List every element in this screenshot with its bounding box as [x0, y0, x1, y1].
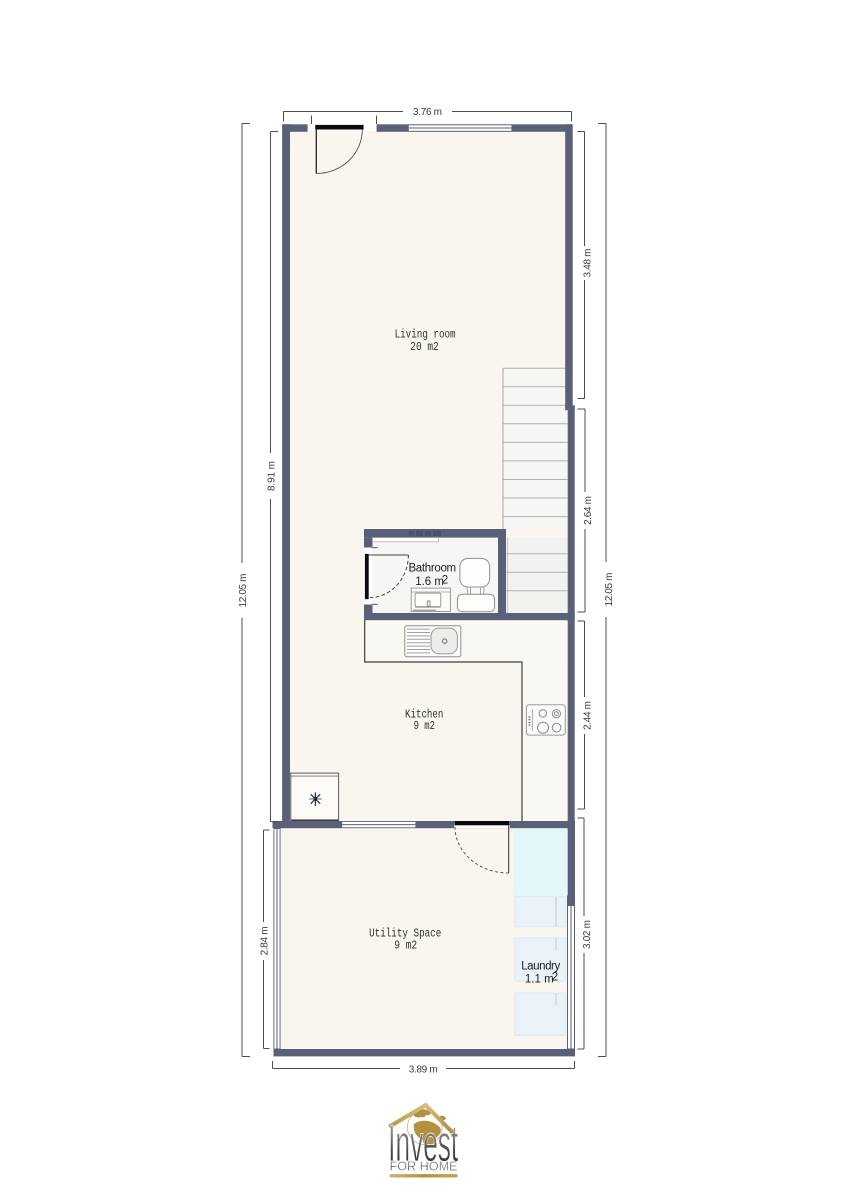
svg-text:2.84 m: 2.84 m	[260, 926, 271, 955]
svg-text:2.64 m: 2.64 m	[583, 496, 594, 525]
svg-text:9 m2: 9 m2	[414, 719, 435, 733]
svg-text:9 m2: 9 m2	[394, 939, 417, 953]
svg-text:FOR HOME: FOR HOME	[390, 1160, 458, 1174]
svg-text:12.05 m: 12.05 m	[238, 574, 249, 608]
svg-text:Bathroom: Bathroom	[408, 563, 456, 575]
svg-text:12.05 m: 12.05 m	[604, 573, 615, 607]
svg-text:3.89 m: 3.89 m	[409, 1064, 438, 1075]
svg-text:3.48 m: 3.48 m	[582, 249, 593, 278]
svg-text:20 m2: 20 m2	[410, 340, 439, 354]
svg-text:2: 2	[552, 971, 558, 983]
svg-text:1.1 m: 1.1 m	[525, 973, 554, 985]
svg-text:1.6 m: 1.6 m	[415, 576, 444, 588]
svg-text:2.44 m: 2.44 m	[582, 701, 593, 730]
svg-text:3.02 m: 3.02 m	[582, 920, 593, 949]
svg-text:8.91 m: 8.91 m	[267, 461, 278, 491]
svg-text:2: 2	[442, 574, 448, 586]
svg-text:3.76 m: 3.76 m	[413, 107, 442, 118]
